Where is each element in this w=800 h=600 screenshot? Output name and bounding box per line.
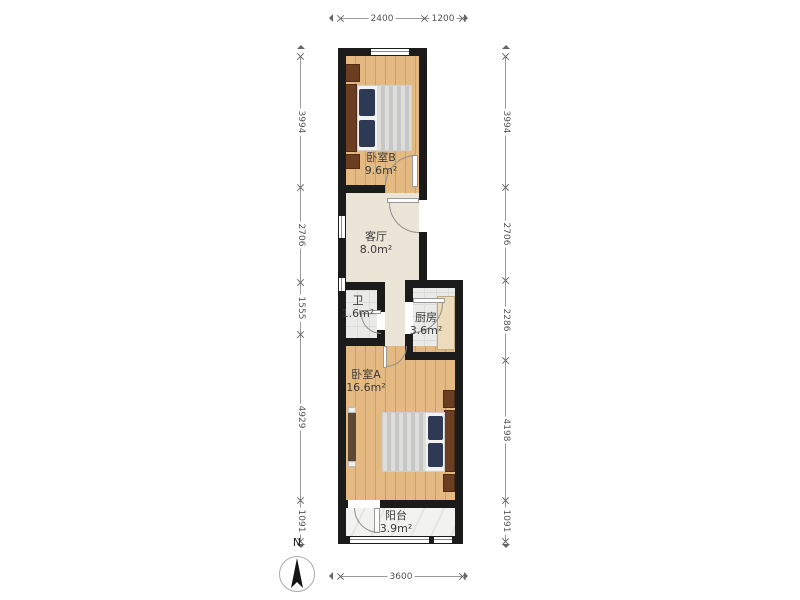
dim-value: 1200 [430, 14, 457, 24]
dim-value: 1091 [501, 507, 511, 534]
radiator [348, 407, 356, 467]
wall-bathroom-bottom [346, 338, 385, 346]
wall-kitchen-bottom [405, 352, 463, 360]
room-area: 3.9m² [380, 522, 413, 535]
compass-north-label: N [293, 536, 301, 549]
wall-bathroom-right [377, 282, 385, 312]
room-area: 16.6m² [346, 381, 386, 394]
room-name: 卫 [342, 294, 375, 307]
dim-right-4198: 4198 [499, 360, 512, 500]
nightstand [344, 64, 360, 82]
hallway-floor [385, 282, 405, 346]
room-name: 卧室B [365, 151, 398, 164]
dim-right-2286: 2286 [499, 280, 512, 360]
room-name: 厨房 [410, 311, 443, 324]
dim-value: 2706 [501, 220, 511, 247]
window-balcony [350, 536, 452, 544]
dim-tick [336, 572, 345, 581]
dim-left-3994: 3994 [294, 56, 307, 187]
radiator-cap [348, 407, 356, 413]
dim-value: 3994 [296, 108, 306, 135]
room-area: 9.6m² [365, 164, 398, 177]
room-name: 卧室A [346, 368, 386, 381]
room-area: 3.6m² [410, 324, 443, 337]
dim-arrow [329, 14, 333, 22]
dim-value: 3600 [388, 572, 415, 582]
dim-left-2706: 2706 [294, 187, 307, 282]
window-bathroom [338, 278, 346, 291]
radiator-cap [348, 461, 356, 467]
dim-arrow [464, 572, 468, 580]
dim-top-2400: 2400 [340, 12, 424, 25]
dim-left-1555: 1555 [294, 282, 307, 334]
room-name: 阳台 [380, 509, 413, 522]
dim-tick [501, 276, 510, 285]
dim-tick [501, 356, 510, 365]
dim-tick [501, 52, 510, 61]
dim-tick [296, 496, 305, 505]
dim-value: 2706 [296, 221, 306, 248]
dim-tick [501, 496, 510, 505]
dim-tick [296, 330, 305, 339]
dim-arrow [464, 14, 468, 22]
dim-left-1091: 1091 [294, 500, 307, 541]
dim-arrow [329, 572, 333, 580]
bed-headboard [444, 410, 455, 472]
room-label-balcony: 阳台 3.9m² [380, 509, 413, 535]
nightstand [344, 154, 360, 169]
room-area: 1.6m² [342, 307, 375, 320]
dim-tick [420, 14, 429, 23]
window-living [338, 216, 346, 238]
dim-value: 4198 [501, 417, 511, 444]
dim-right-1091: 1091 [499, 500, 512, 541]
dim-right-3994: 3994 [499, 56, 512, 187]
room-area: 8.0m² [360, 243, 393, 256]
nightstand [443, 390, 455, 408]
room-label-bathroom: 卫 1.6m² [342, 294, 375, 320]
wall-bedroom-b-living [346, 185, 385, 193]
dim-tick [296, 52, 305, 61]
room-label-bedroom-a: 卧室A 16.6m² [346, 368, 386, 394]
bed-blanket [383, 413, 426, 471]
pillow [359, 89, 375, 116]
dim-value: 1555 [296, 295, 306, 322]
room-label-kitchen: 厨房 3.6m² [410, 311, 443, 337]
wall-right-mid [419, 232, 427, 282]
dim-right-2706: 2706 [499, 187, 512, 280]
dim-arrow [297, 45, 305, 49]
wall-balcony [338, 500, 348, 508]
dim-value: 2400 [369, 14, 396, 24]
window-bedroom-b [371, 48, 409, 56]
dim-arrow [502, 45, 510, 49]
room-label-bedroom-b: 卧室B 9.6m² [365, 151, 398, 177]
dim-tick [336, 14, 345, 23]
dim-value: 2286 [501, 307, 511, 334]
wall-balcony [380, 500, 463, 508]
wall-kitchen-left [405, 288, 413, 302]
pillow [359, 120, 375, 147]
pillow [428, 416, 443, 440]
dim-value: 3994 [501, 108, 511, 135]
dim-value: 4929 [296, 404, 306, 431]
dim-arrow [502, 544, 510, 548]
nightstand [443, 474, 455, 492]
room-name: 客厅 [360, 230, 393, 243]
dim-tick [296, 183, 305, 192]
dim-tick [296, 278, 305, 287]
dim-tick [501, 183, 510, 192]
dim-top-1200: 1200 [424, 12, 462, 25]
dim-left-4929: 4929 [294, 334, 307, 500]
compass-needle-icon [288, 557, 306, 591]
wall-right-upper [419, 48, 427, 200]
dim-bottom-3600: 3600 [340, 570, 462, 583]
pillow [428, 443, 443, 467]
room-label-living: 客厅 8.0m² [360, 230, 393, 256]
dim-value: 1091 [296, 507, 306, 534]
bed-blanket [377, 86, 411, 150]
window-mullion [429, 536, 434, 544]
floor-plan: 卧室B 9.6m² 客厅 8.0m² 卫 1.6m² 厨房 3.6m² 卧室A … [0, 0, 800, 600]
